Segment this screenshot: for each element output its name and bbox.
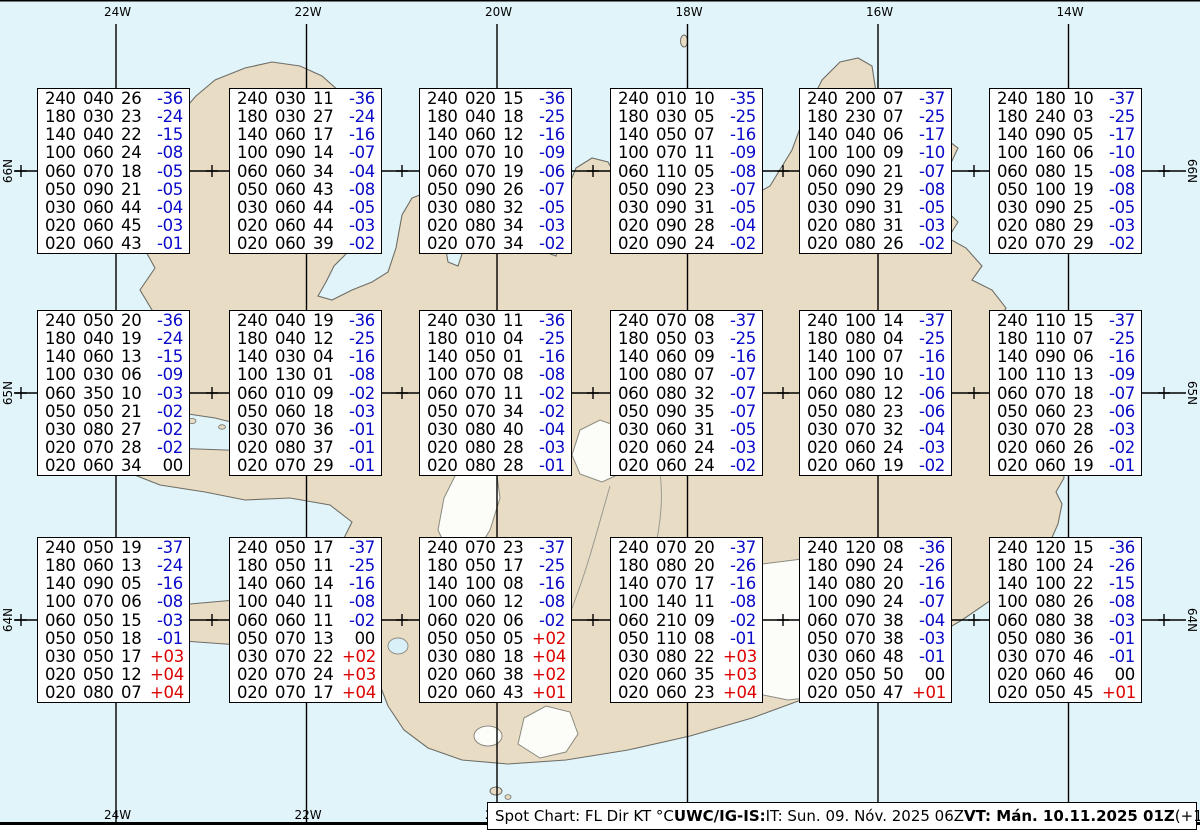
spot-row: 05005018-01 [45,630,183,648]
flight-level-value: 020 [237,217,271,235]
temperature-value: -03 [912,217,945,235]
spot-row: 06008015-08 [997,163,1135,181]
spot-row: 14009006-16 [997,348,1135,366]
wind-direction-value: 080 [465,199,499,217]
spot-row: 06006034-04 [237,163,375,181]
flight-level-value: 020 [807,217,841,235]
wind-speed-value: 32 [883,421,908,439]
temperature-value: -26 [1102,557,1135,575]
flight-level-value: 180 [237,330,271,348]
flight-level-value: 050 [237,403,271,421]
meridian-label-top: 16W [866,6,893,18]
temperature-value: -03 [1102,612,1135,630]
caption-bold-segment: UWC/IG-IS: [674,807,766,825]
spot-row: 14005007-16 [618,126,756,144]
spot-row: 24003011-36 [237,90,375,108]
flight-level-value: 180 [427,557,461,575]
wind-speed-value: 04 [313,348,338,366]
flight-level-value: 060 [427,163,461,181]
flight-level-value: 060 [237,163,271,181]
wind-direction-value: 080 [1035,612,1069,630]
temperature-value: -02 [723,235,756,253]
temperature-value: -02 [1102,439,1135,457]
spot-row: 24005019-37 [45,539,183,557]
temperature-value: +01 [1102,684,1135,702]
temperature-value: -04 [912,612,945,630]
temperature-value: -09 [532,144,565,162]
wind-direction-value: 060 [275,181,309,199]
spot-row: 24012015-36 [997,539,1135,557]
wind-direction-value: 070 [656,575,690,593]
wind-speed-value: 38 [503,666,528,684]
spot-row: 03008032-05 [427,199,565,217]
wind-speed-value: 04 [883,330,908,348]
temperature-value: -16 [150,575,183,593]
wind-speed-value: 06 [1073,348,1098,366]
temperature-value: 00 [150,457,183,475]
wind-speed-value: 24 [883,593,908,611]
temperature-value: -03 [723,439,756,457]
spot-row: 05005005+02 [427,630,565,648]
temperature-value: -05 [150,181,183,199]
spot-row: 18005011-25 [237,557,375,575]
wind-speed-value: 44 [313,199,338,217]
wind-speed-value: 12 [313,330,338,348]
wind-speed-value: 44 [313,217,338,235]
flight-level-value: 020 [427,457,461,475]
flight-level-value: 240 [997,312,1031,330]
spot-row: 18004012-25 [237,330,375,348]
wind-speed-value: 27 [121,421,146,439]
flight-level-value: 020 [237,457,271,475]
wind-direction-value: 030 [275,108,309,126]
flight-level-value: 020 [807,235,841,253]
temperature-value: -16 [912,575,945,593]
wind-direction-value: 080 [845,575,879,593]
wind-speed-value: 19 [1073,181,1098,199]
temperature-value: -25 [532,330,565,348]
wind-speed-value: 05 [694,108,719,126]
wind-direction-value: 060 [465,684,499,702]
temperature-value: -15 [150,348,183,366]
temperature-value: -24 [342,108,375,126]
parallel-label-right: 66N [1186,159,1198,183]
wind-direction-value: 040 [83,126,117,144]
wind-speed-value: 28 [503,457,528,475]
spot-row: 03008018+04 [427,648,565,666]
temperature-value: -17 [912,126,945,144]
spot-box: 24005019-3718006013-2414009005-161000700… [37,537,190,703]
wind-speed-value: 43 [313,181,338,199]
wind-direction-value: 040 [465,108,499,126]
temperature-value: -03 [532,439,565,457]
spot-row: 06008038-03 [997,612,1135,630]
wind-speed-value: 12 [883,385,908,403]
spot-row: 03007028-03 [997,421,1135,439]
spot-row: 24018010-37 [997,90,1135,108]
spot-row: 10009014-07 [237,144,375,162]
spot-row: 02008031-03 [807,217,945,235]
wind-direction-value: 090 [656,181,690,199]
temperature-value: -10 [912,144,945,162]
temperature-value: -09 [723,144,756,162]
wind-speed-value: 15 [1073,539,1098,557]
spot-row: 10007010-09 [427,144,565,162]
flight-level-value: 140 [618,126,652,144]
wind-speed-value: 27 [313,108,338,126]
spot-row: 14004006-17 [807,126,945,144]
wind-speed-value: 15 [121,612,146,630]
spot-row: 18003027-24 [237,108,375,126]
flight-level-value: 140 [427,348,461,366]
flight-level-value: 100 [427,144,461,162]
flight-level-value: 060 [807,612,841,630]
spot-box: 24003011-3618001004-2514005001-161000700… [419,310,572,476]
temperature-value: -07 [723,403,756,421]
wind-speed-value: 11 [313,612,338,630]
wind-direction-value: 050 [465,557,499,575]
temperature-value: +04 [723,684,756,702]
flight-level-value: 240 [997,90,1031,108]
spot-row: 14008020-16 [807,575,945,593]
wind-speed-value: 17 [503,557,528,575]
temperature-value: -37 [150,539,183,557]
wind-speed-value: 11 [313,90,338,108]
wind-speed-value: 29 [1073,235,1098,253]
spot-row: 0200505000 [807,666,945,684]
wind-speed-value: 10 [694,90,719,108]
flight-level-value: 140 [807,348,841,366]
spot-box: 24007020-3718008020-2614007017-161001401… [610,537,763,703]
spot-row: 10006012-08 [427,593,565,611]
flight-level-value: 020 [45,439,79,457]
wind-direction-value: 080 [845,330,879,348]
wind-speed-value: 50 [883,666,908,684]
wind-speed-value: 39 [313,235,338,253]
wind-direction-value: 060 [465,126,499,144]
wind-speed-value: 10 [1073,90,1098,108]
spot-row: 24007023-37 [427,539,565,557]
temperature-value: -03 [532,217,565,235]
spot-row: 14009005-16 [45,575,183,593]
wind-direction-value: 050 [656,330,690,348]
temperature-value: -07 [912,593,945,611]
flight-level-value: 030 [618,421,652,439]
wind-speed-value: 24 [121,144,146,162]
flight-level-value: 100 [237,366,271,384]
temperature-value: +02 [342,648,375,666]
wind-direction-value: 060 [845,648,879,666]
spot-row: 18004019-24 [45,330,183,348]
wind-direction-value: 070 [275,421,309,439]
wind-direction-value: 140 [656,593,690,611]
temperature-value: +04 [150,684,183,702]
meridian-label-top: 20W [485,6,512,18]
wind-direction-value: 090 [1035,126,1069,144]
flight-level-value: 050 [997,630,1031,648]
temperature-value: -25 [342,330,375,348]
spot-row: 02007029-01 [237,457,375,475]
flight-level-value: 180 [618,330,652,348]
flight-level-value: 030 [618,648,652,666]
flight-level-value: 060 [618,385,652,403]
temperature-value: +04 [150,666,183,684]
temperature-value: -04 [342,163,375,181]
wind-speed-value: 35 [694,666,719,684]
wind-direction-value: 080 [656,385,690,403]
spot-row: 03007046-01 [997,648,1135,666]
temperature-value: -37 [723,312,756,330]
flight-level-value: 060 [427,612,461,630]
wind-direction-value: 060 [83,348,117,366]
wind-direction-value: 080 [845,403,879,421]
spot-box: 24018010-3718024003-2514009005-171001600… [989,88,1142,254]
wind-direction-value: 020 [465,90,499,108]
wind-direction-value: 100 [1035,181,1069,199]
wind-speed-value: 34 [503,403,528,421]
flight-level-value: 140 [807,575,841,593]
temperature-value: -08 [342,181,375,199]
wind-speed-value: 21 [883,163,908,181]
flight-level-value: 050 [997,403,1031,421]
wind-speed-value: 07 [883,348,908,366]
flight-level-value: 140 [237,575,271,593]
flight-level-value: 240 [45,312,79,330]
caption-segment: (+19 h) [1175,807,1200,825]
temperature-value: -16 [723,126,756,144]
flight-level-value: 020 [997,457,1031,475]
wind-direction-value: 030 [656,108,690,126]
wind-direction-value: 110 [1035,330,1069,348]
flight-level-value: 100 [807,366,841,384]
temperature-value: -03 [912,439,945,457]
wind-speed-value: 24 [694,457,719,475]
wind-speed-value: 18 [121,163,146,181]
temperature-value: -09 [1102,366,1135,384]
flight-level-value: 100 [618,593,652,611]
wind-speed-value: 13 [1073,366,1098,384]
wind-direction-value: 050 [845,666,879,684]
temperature-value: -05 [1102,199,1135,217]
spot-row: 14009005-17 [997,126,1135,144]
flight-level-value: 020 [807,684,841,702]
wind-direction-value: 050 [275,539,309,557]
spot-row: 18024003-25 [997,108,1135,126]
flight-level-value: 240 [618,539,652,557]
wind-speed-value: 01 [313,366,338,384]
wind-speed-value: 11 [694,144,719,162]
spot-row: 02006019-01 [997,457,1135,475]
spot-row: 05011008-01 [618,630,756,648]
wind-speed-value: 06 [1073,144,1098,162]
spot-row: 02005045+01 [997,684,1135,702]
wind-speed-value: 12 [503,593,528,611]
wind-direction-value: 060 [656,439,690,457]
flight-level-value: 060 [237,385,271,403]
wind-speed-value: 11 [313,593,338,611]
wind-speed-value: 20 [694,539,719,557]
wind-direction-value: 080 [83,684,117,702]
temperature-value: -01 [723,630,756,648]
wind-direction-value: 060 [656,457,690,475]
spot-row: 05008036-01 [997,630,1135,648]
wind-direction-value: 080 [83,421,117,439]
temperature-value: -24 [150,330,183,348]
flight-level-value: 100 [997,593,1031,611]
wind-direction-value: 030 [83,366,117,384]
flight-level-value: 180 [807,330,841,348]
spot-row: 02006024-02 [618,457,756,475]
spot-row: 02008028-03 [427,439,565,457]
temperature-value: -06 [532,163,565,181]
spot-row: 24005017-37 [237,539,375,557]
wind-speed-value: 34 [121,457,146,475]
spot-row: 06035010-03 [45,385,183,403]
wind-speed-value: 04 [503,330,528,348]
wind-direction-value: 060 [845,439,879,457]
wind-direction-value: 080 [1035,630,1069,648]
wind-speed-value: 19 [883,457,908,475]
flight-level-value: 020 [618,457,652,475]
wind-direction-value: 050 [83,312,117,330]
wind-speed-value: 28 [1073,421,1098,439]
temperature-value: -08 [1102,163,1135,181]
spot-row: 24003011-36 [427,312,565,330]
wind-direction-value: 080 [845,235,879,253]
wind-direction-value: 080 [1035,593,1069,611]
temperature-value: -08 [342,366,375,384]
temperature-value: -01 [150,235,183,253]
wind-direction-value: 060 [275,163,309,181]
wind-speed-value: 23 [1073,403,1098,421]
wind-direction-value: 060 [275,199,309,217]
wind-direction-value: 090 [656,403,690,421]
flight-level-value: 020 [237,666,271,684]
spot-row: 02006043+01 [427,684,565,702]
flight-level-value: 140 [237,126,271,144]
spot-row: 0200603400 [45,457,183,475]
flight-level-value: 030 [807,648,841,666]
temperature-value: -16 [723,575,756,593]
spot-box: 24012015-3618010024-2614010022-151000802… [989,537,1142,703]
wind-direction-value: 040 [83,90,117,108]
spot-row: 14006013-15 [45,348,183,366]
wind-speed-value: 23 [694,684,719,702]
spot-box: 24010014-3718008004-2514010007-161000901… [799,310,952,476]
flight-level-value: 050 [807,403,841,421]
wind-speed-value: 06 [121,593,146,611]
flight-level-value: 140 [45,575,79,593]
spot-row: 02008026-02 [807,235,945,253]
wind-direction-value: 060 [656,348,690,366]
temperature-value: -01 [532,457,565,475]
wind-direction-value: 050 [845,684,879,702]
spot-row: 24002015-36 [427,90,565,108]
spot-row: 24001010-35 [618,90,756,108]
wind-speed-value: 07 [694,126,719,144]
wind-direction-value: 050 [83,648,117,666]
temperature-value: -02 [150,439,183,457]
spot-row: 02005047+01 [807,684,945,702]
wind-direction-value: 060 [83,557,117,575]
wind-speed-value: 17 [694,575,719,593]
temperature-value: -07 [723,366,756,384]
wind-direction-value: 030 [275,90,309,108]
temperature-value: -03 [150,385,183,403]
temperature-value: -26 [723,557,756,575]
temperature-value: -01 [150,630,183,648]
wind-direction-value: 070 [465,144,499,162]
temperature-value: -03 [342,217,375,235]
spot-row: 18006013-24 [45,557,183,575]
wind-direction-value: 050 [83,612,117,630]
spot-row: 14010022-15 [997,575,1135,593]
wind-direction-value: 100 [1035,575,1069,593]
spot-box: 24012008-3618009024-2614008020-161000902… [799,537,952,703]
wind-direction-value: 070 [656,312,690,330]
spot-row: 05006023-06 [997,403,1135,421]
spot-row: 06011005-08 [618,163,756,181]
flight-level-value: 020 [427,439,461,457]
wind-direction-value: 060 [83,235,117,253]
flight-level-value: 030 [237,199,271,217]
wind-speed-value: 09 [313,385,338,403]
spot-row: 24007020-37 [618,539,756,557]
spot-row: 02006044-03 [237,217,375,235]
parallel-label-left: 64N [2,608,14,632]
temperature-value: -10 [912,366,945,384]
wind-direction-value: 110 [656,163,690,181]
flight-level-value: 180 [618,108,652,126]
wind-direction-value: 040 [845,126,879,144]
temperature-value: -05 [532,199,565,217]
wind-direction-value: 060 [1035,439,1069,457]
spot-row: 05009029-08 [807,181,945,199]
wind-direction-value: 100 [845,348,879,366]
wind-speed-value: 29 [313,457,338,475]
flight-level-value: 100 [45,144,79,162]
wind-speed-value: 06 [503,612,528,630]
wind-direction-value: 060 [465,593,499,611]
temperature-value: -02 [150,421,183,439]
wind-speed-value: 06 [883,126,908,144]
spot-row: 18005003-25 [618,330,756,348]
flight-level-value: 030 [45,648,79,666]
temperature-value: -03 [1102,217,1135,235]
temperature-value: -25 [723,108,756,126]
wind-direction-value: 090 [275,144,309,162]
temperature-value: -02 [723,612,756,630]
spot-row: 02008034-03 [427,217,565,235]
wind-direction-value: 060 [83,199,117,217]
wind-direction-value: 070 [275,666,309,684]
temperature-value: -08 [150,144,183,162]
flight-level-value: 020 [618,439,652,457]
wind-direction-value: 080 [465,648,499,666]
wind-speed-value: 36 [313,421,338,439]
flight-level-value: 140 [997,126,1031,144]
temperature-value: -16 [342,348,375,366]
wind-direction-value: 080 [845,385,879,403]
wind-direction-value: 080 [656,557,690,575]
wind-direction-value: 070 [845,630,879,648]
temperature-value: -37 [342,539,375,557]
wind-direction-value: 070 [465,235,499,253]
glacier-eyjafjallajokull [474,726,502,746]
flight-level-value: 100 [618,366,652,384]
wind-speed-value: 19 [121,330,146,348]
wind-direction-value: 210 [656,612,690,630]
